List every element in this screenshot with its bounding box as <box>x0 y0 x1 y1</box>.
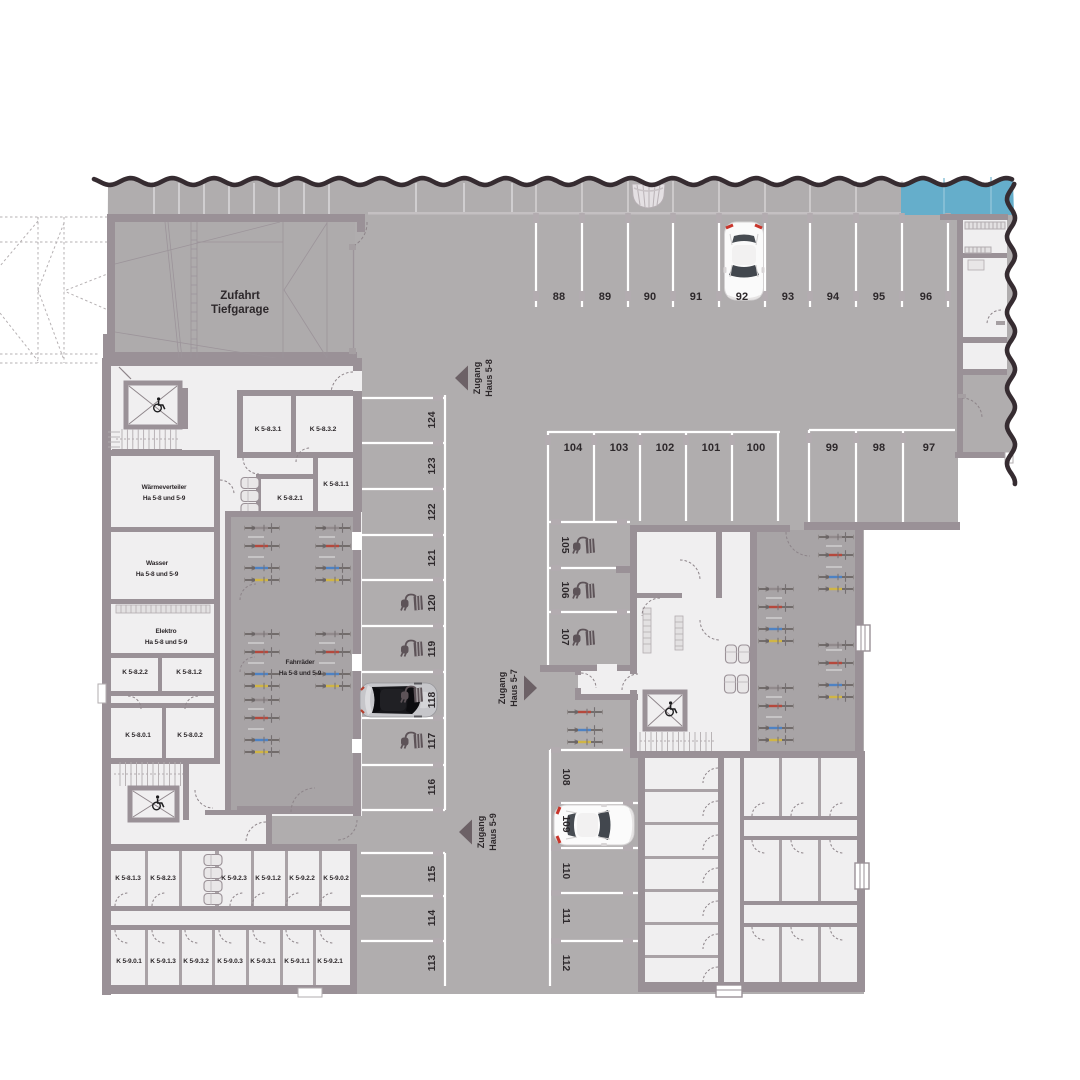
svg-text:109: 109 <box>560 816 571 833</box>
svg-text:98: 98 <box>873 442 885 454</box>
svg-text:99: 99 <box>826 442 838 454</box>
svg-text:K 5-9.3.1: K 5-9.3.1 <box>250 958 276 965</box>
svg-text:K 5-8.2.2: K 5-8.2.2 <box>122 669 148 676</box>
svg-text:112: 112 <box>560 955 571 972</box>
svg-text:95: 95 <box>873 291 885 303</box>
svg-text:Fahrräder: Fahrräder <box>286 659 316 666</box>
svg-text:K 5-9.0.3: K 5-9.0.3 <box>217 958 243 965</box>
svg-text:Zugang: Zugang <box>472 362 482 395</box>
svg-text:89: 89 <box>599 291 611 303</box>
svg-text:107: 107 <box>559 629 570 646</box>
svg-text:Wärmeverteiler: Wärmeverteiler <box>142 484 187 491</box>
svg-text:Wasser: Wasser <box>146 560 169 567</box>
svg-text:103: 103 <box>610 442 629 454</box>
svg-text:102: 102 <box>656 442 675 454</box>
svg-text:Zufahrt: Zufahrt <box>220 290 260 302</box>
svg-text:123: 123 <box>427 457 438 474</box>
svg-text:K 5-8.0.2: K 5-8.0.2 <box>177 732 203 739</box>
svg-text:K 5-9.0.2: K 5-9.0.2 <box>323 875 349 882</box>
svg-text:K 5-9.1.3: K 5-9.1.3 <box>150 958 176 965</box>
svg-text:K 5-8.1.2: K 5-8.1.2 <box>176 669 202 676</box>
svg-text:Haus 5-7: Haus 5-7 <box>509 669 519 707</box>
svg-text:K 5-8.3.1: K 5-8.3.1 <box>255 426 282 433</box>
svg-text:K 5-9.3.2: K 5-9.3.2 <box>183 958 209 965</box>
svg-text:Zugang: Zugang <box>497 672 507 705</box>
svg-text:Ha 5-8 und 5-9: Ha 5-8 und 5-9 <box>143 495 186 502</box>
svg-text:K 5-9.2.2: K 5-9.2.2 <box>289 875 315 882</box>
svg-text:K 5-8.3.2: K 5-8.3.2 <box>310 426 337 433</box>
svg-text:92: 92 <box>736 291 748 303</box>
svg-text:K 5-8.2.3: K 5-8.2.3 <box>150 875 176 882</box>
svg-text:Elektro: Elektro <box>156 628 177 635</box>
svg-text:118: 118 <box>427 691 438 708</box>
svg-text:K 5-9.1.1: K 5-9.1.1 <box>284 958 310 965</box>
svg-text:91: 91 <box>690 291 702 303</box>
svg-text:113: 113 <box>427 954 438 971</box>
svg-text:K 5-9.0.1: K 5-9.0.1 <box>116 958 142 965</box>
svg-text:K 5-8.1.3: K 5-8.1.3 <box>115 875 141 882</box>
svg-text:119: 119 <box>427 640 438 657</box>
svg-text:90: 90 <box>644 291 656 303</box>
svg-text:124: 124 <box>427 411 438 428</box>
svg-text:120: 120 <box>427 594 438 611</box>
svg-text:114: 114 <box>427 909 438 926</box>
svg-text:Haus 5-8: Haus 5-8 <box>484 359 494 397</box>
svg-text:106: 106 <box>559 582 570 599</box>
svg-text:111: 111 <box>560 908 571 924</box>
svg-text:96: 96 <box>920 291 932 303</box>
svg-text:117: 117 <box>427 732 438 749</box>
svg-text:97: 97 <box>923 442 935 454</box>
svg-text:Tiefgarage: Tiefgarage <box>211 304 269 316</box>
svg-text:110: 110 <box>560 863 571 880</box>
svg-text:Ha 5-8 und 5-9: Ha 5-8 und 5-9 <box>136 571 179 578</box>
svg-text:K 5-8.1.1: K 5-8.1.1 <box>323 481 349 488</box>
svg-text:K 5-9.1.2: K 5-9.1.2 <box>255 875 281 882</box>
svg-text:Haus 5-9: Haus 5-9 <box>488 813 498 851</box>
svg-text:115: 115 <box>427 865 438 882</box>
svg-text:105: 105 <box>559 537 570 554</box>
svg-text:K 5-9.2.1: K 5-9.2.1 <box>317 958 343 965</box>
svg-text:94: 94 <box>827 291 840 303</box>
svg-text:Ha 5-8 und 5-9: Ha 5-8 und 5-9 <box>279 670 322 677</box>
svg-text:116: 116 <box>427 778 438 795</box>
svg-text:K 5-8.2.1: K 5-8.2.1 <box>277 495 303 502</box>
svg-text:104: 104 <box>564 442 583 454</box>
svg-text:93: 93 <box>782 291 794 303</box>
svg-text:Ha 5-8 und 5-9: Ha 5-8 und 5-9 <box>145 639 188 646</box>
svg-text:108: 108 <box>560 769 571 786</box>
svg-text:122: 122 <box>427 503 438 520</box>
svg-text:88: 88 <box>553 291 565 303</box>
svg-text:K 5-8.0.1: K 5-8.0.1 <box>125 732 151 739</box>
svg-text:121: 121 <box>427 549 438 566</box>
svg-text:101: 101 <box>702 442 721 454</box>
svg-text:K 5-9.2.3: K 5-9.2.3 <box>221 875 247 882</box>
svg-text:100: 100 <box>747 442 766 454</box>
svg-text:Zugang: Zugang <box>476 816 486 849</box>
